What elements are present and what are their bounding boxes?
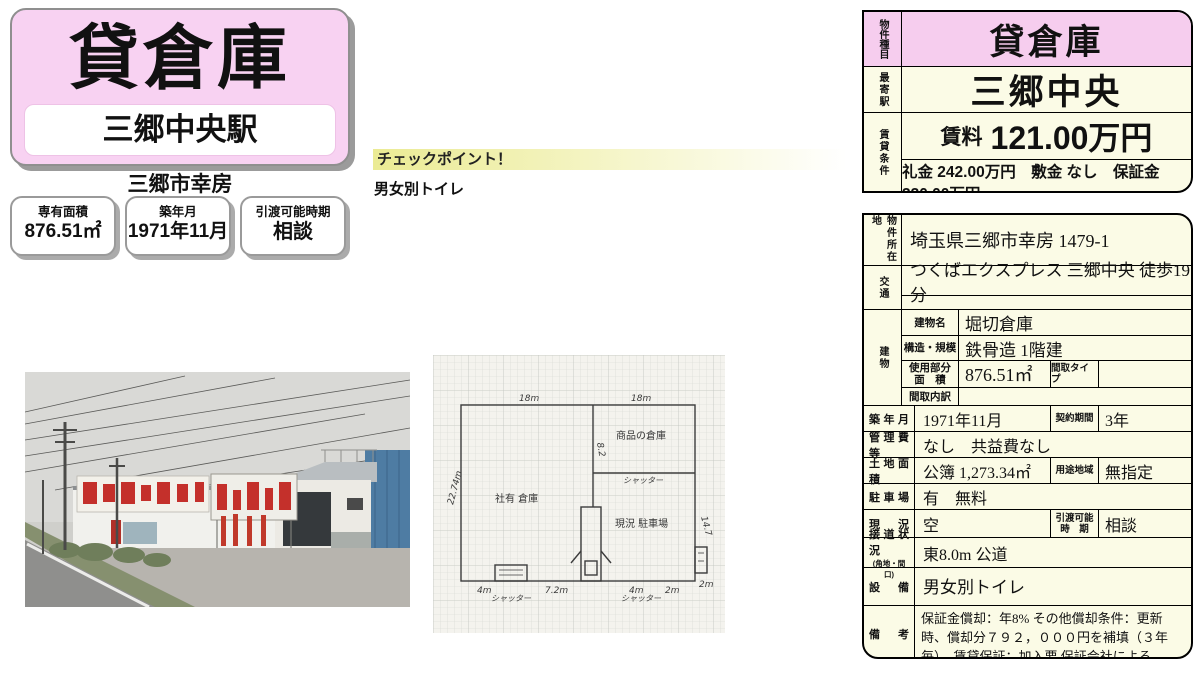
summary-table: 物件種目 貸倉庫 最寄駅 三郷中央 賃貸条件 賃料 121.00万円 礼金 24…: [862, 10, 1193, 193]
notes-value: 保証金償却：年8% その他償却条件：更新時、償却分７９２，０００円を補填（３年毎…: [915, 606, 1191, 659]
equipment-label: 設備: [864, 568, 915, 605]
chip-label: 専有面積: [12, 205, 114, 219]
chip-label: 引渡可能時期: [242, 205, 344, 219]
fees-line: 礼金 242.00万円 敷金 なし 保証金 330.00万円: [902, 160, 1191, 193]
row-parking: 駐車場 有 無料: [864, 483, 1191, 509]
rent-label: 賃料: [941, 121, 983, 151]
nearest-station-label: 最寄駅: [864, 67, 902, 112]
plan-room-parking: 現況 駐車場: [615, 517, 668, 530]
chip-value: 1971年11月: [127, 219, 229, 245]
floor-plan-svg: 18m 18m 22.74m 8.2 14.7 4m 7.2m 4m 2m 2m…: [433, 355, 725, 633]
parking-label: 駐車場: [864, 484, 915, 509]
built-label: 築年月: [864, 406, 915, 431]
chip-value: 相談: [242, 219, 344, 245]
row-building-name: 建物名 堀切倉庫: [902, 310, 1191, 335]
chip-built-date: 築年月 1971年11月: [125, 196, 231, 256]
station-name-box: 三郷中央駅: [24, 104, 336, 156]
chip-label: 築年月: [127, 205, 229, 219]
plan-dim-bottom-4: 2m: [665, 586, 680, 596]
parking-value: 有 無料: [915, 484, 1191, 509]
zoning-label: 用途地域: [1050, 458, 1099, 483]
row-access: 交通 つくばエクスプレス 三郷中央 徒歩19分: [864, 265, 1191, 309]
handover-value: 相談: [1099, 510, 1191, 537]
property-type-label: 物件種目: [864, 12, 902, 66]
equipment-value: 男女別トイレ: [915, 568, 1191, 605]
location-label: 物件所在地: [864, 215, 902, 265]
chip-handover: 引渡可能時期 相談: [240, 196, 346, 256]
rent-line: 賃料 121.00万円: [902, 113, 1191, 160]
plan-dim-bottom-5: 2m: [699, 580, 714, 590]
row-status: 現況 空 引渡可能 時 期 相談: [864, 509, 1191, 537]
plan-room-storage: 商品の倉庫: [616, 429, 666, 442]
building-name-label: 建物名: [902, 310, 959, 335]
land-label: 土地面積: [864, 458, 915, 483]
row-road: 接道状況 (角地・間口) 東8.0m 公道: [864, 537, 1191, 567]
row-land-area: 土地面積 公簿 1,273.34㎡ 用途地域 無指定: [864, 457, 1191, 483]
row-mgmt-fees: 管理費等 なし 共益費なし: [864, 431, 1191, 457]
plan-shutter-bottom-left: シャッター: [491, 594, 532, 603]
use-area-label: 使用部分 面 積: [902, 361, 959, 387]
structure-label: 構造・規模: [902, 336, 959, 360]
use-area-value: 876.51㎡: [959, 361, 1050, 387]
plan-shutter-bottom-right: シャッター: [621, 594, 662, 603]
window: [347, 498, 363, 510]
row-use-area: 使用部分 面 積 876.51㎡ 間取タイプ: [902, 360, 1191, 387]
checkpoint-heading: チェックポイント！: [373, 149, 847, 170]
plan-dim-top-right: 18m: [631, 394, 651, 404]
access-label: 交通: [864, 266, 902, 309]
row-notes: 備考 保証金償却：年8% その他償却条件：更新時、償却分７９２，０００円を補填（…: [864, 605, 1191, 659]
city-name: 三郷市幸房: [10, 168, 350, 198]
row-equipment: 設備 男女別トイレ: [864, 567, 1191, 605]
detail-table: 物件所在地 埼玉県三郷市幸房 1479-1 交通 つくばエクスプレス 三郷中央 …: [862, 213, 1193, 659]
exterior-photo: [25, 372, 410, 607]
building-label: 建物: [864, 310, 902, 405]
row-plan-detail: 間取内訳: [902, 387, 1191, 405]
structure-value: 鉄骨造 1階建: [959, 336, 1191, 360]
property-flyer: 貸倉庫 三郷中央駅 三郷市幸房 専有面積 876.51㎡ 築年月 1971年11…: [0, 0, 1200, 692]
road-label: 接道状況 (角地・間口): [864, 538, 915, 567]
plan-detail-value: [959, 388, 1191, 405]
rental-conditions-label: 賃貸条件: [864, 113, 902, 193]
plan-dim-bottom-1: 4m: [477, 586, 492, 596]
mgmt-value: なし 共益費なし: [915, 432, 1191, 457]
plan-shutter-mid: シャッター: [623, 476, 664, 485]
access-empty: [902, 296, 1191, 309]
chip-floor-area: 専有面積 876.51㎡: [10, 196, 116, 256]
row-building: 建物 建物名 堀切倉庫 構造・規模 鉄骨造 1階建 使用部分 面 積 876.5…: [864, 309, 1191, 405]
zoning-value: 無指定: [1099, 458, 1191, 483]
rent-value: 121.00万円: [991, 113, 1153, 159]
built-value: 1971年11月: [915, 406, 1050, 431]
row-structure: 構造・規模 鉄骨造 1階建: [902, 335, 1191, 360]
property-type-value: 貸倉庫: [902, 12, 1191, 66]
chip-value: 876.51㎡: [12, 219, 114, 245]
plan-type-label: 間取タイプ: [1050, 361, 1099, 387]
floor-plan-sketch: 18m 18m 22.74m 8.2 14.7 4m 7.2m 4m 2m 2m…: [433, 355, 725, 633]
row-nearest-station: 最寄駅 三郷中央: [864, 66, 1191, 112]
building-name-value: 堀切倉庫: [959, 310, 1191, 335]
plan-dim-bottom-2: 7.2m: [545, 586, 568, 596]
title-card: 貸倉庫 三郷中央駅: [10, 8, 350, 166]
road-value: 東8.0m 公道: [915, 538, 1191, 567]
land-value: 公簿 1,273.34㎡: [915, 458, 1050, 483]
row-rental-conditions: 賃貸条件 賃料 121.00万円 礼金 242.00万円 敷金 なし 保証金 3…: [864, 112, 1191, 193]
mgmt-label: 管理費等: [864, 432, 915, 457]
checkpoint-note: 男女別トイレ: [374, 178, 464, 199]
contract-label: 契約期間: [1050, 406, 1099, 431]
plan-detail-label: 間取内訳: [902, 388, 959, 405]
handover-label: 引渡可能 時 期: [1050, 510, 1099, 537]
row-property-type: 物件種目 貸倉庫: [864, 12, 1191, 66]
exterior-photo-illustration: [25, 372, 410, 607]
status-value: 空: [915, 510, 1050, 537]
contract-value: 3年: [1099, 406, 1191, 431]
plan-type-value: [1099, 361, 1191, 387]
plan-dim-top-left: 18m: [519, 394, 539, 404]
property-type-title: 貸倉庫: [12, 10, 348, 106]
row-built: 築年月 1971年11月 契約期間 3年: [864, 405, 1191, 431]
plan-room-left: 社有 倉庫: [495, 492, 538, 505]
access-value: つくばエクスプレス 三郷中央 徒歩19分: [902, 266, 1191, 296]
nearest-station-value: 三郷中央: [902, 67, 1191, 112]
notes-label: 備考: [864, 606, 915, 659]
